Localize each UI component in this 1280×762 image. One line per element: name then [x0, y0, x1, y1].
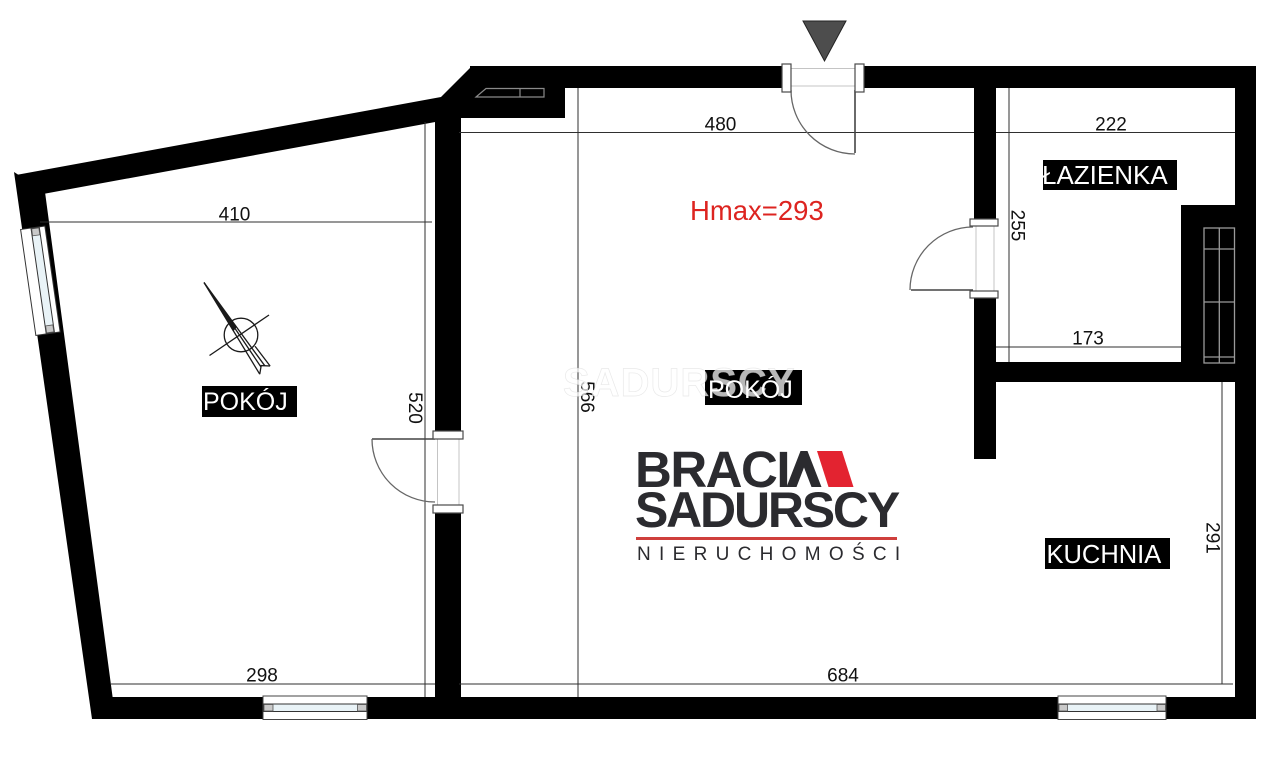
svg-text:POKÓJ: POKÓJ [708, 375, 793, 404]
svg-text:222: 222 [1095, 114, 1127, 135]
svg-text:POKÓJ: POKÓJ [203, 387, 288, 416]
svg-text:255: 255 [1007, 210, 1028, 242]
svg-text:520: 520 [404, 392, 425, 424]
svg-text:Hmax=293: Hmax=293 [690, 195, 824, 226]
svg-text:298: 298 [246, 666, 278, 687]
svg-text:ŁAZIENKA: ŁAZIENKA [1042, 160, 1168, 190]
svg-text:410: 410 [219, 205, 251, 226]
svg-text:291: 291 [1202, 522, 1223, 554]
svg-text:173: 173 [1072, 329, 1104, 350]
svg-text:684: 684 [827, 666, 859, 687]
svg-text:NIERUCHOMOŚCI: NIERUCHOMOŚCI [637, 543, 909, 565]
svg-text:480: 480 [705, 114, 737, 135]
svg-text:KUCHNIA: KUCHNIA [1047, 541, 1162, 569]
svg-text:SADURSCY: SADURSCY [635, 482, 900, 538]
